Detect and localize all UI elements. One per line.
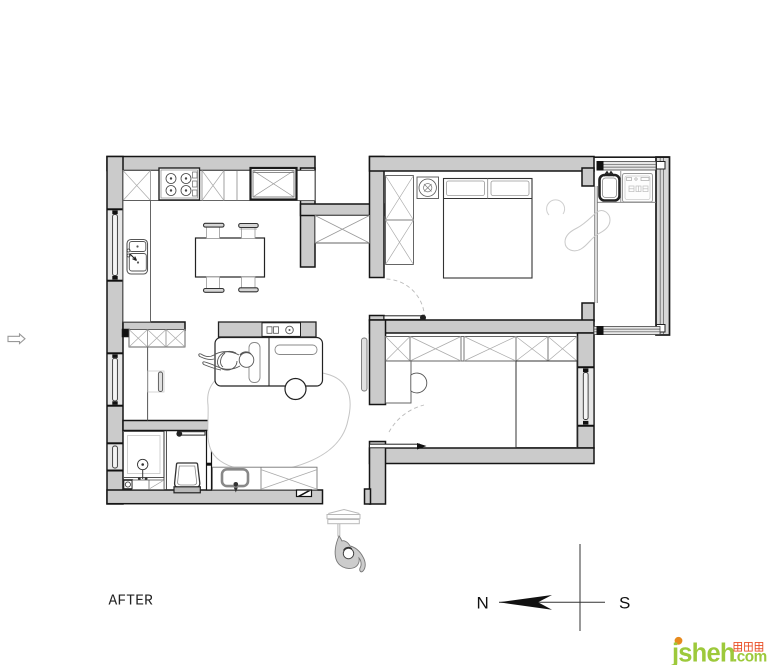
svg-text:S: S: [619, 594, 630, 613]
svg-text:jsheh: jsheh: [671, 640, 735, 665]
svg-text:N: N: [477, 594, 489, 613]
svg-text:AFTER: AFTER: [109, 594, 154, 610]
